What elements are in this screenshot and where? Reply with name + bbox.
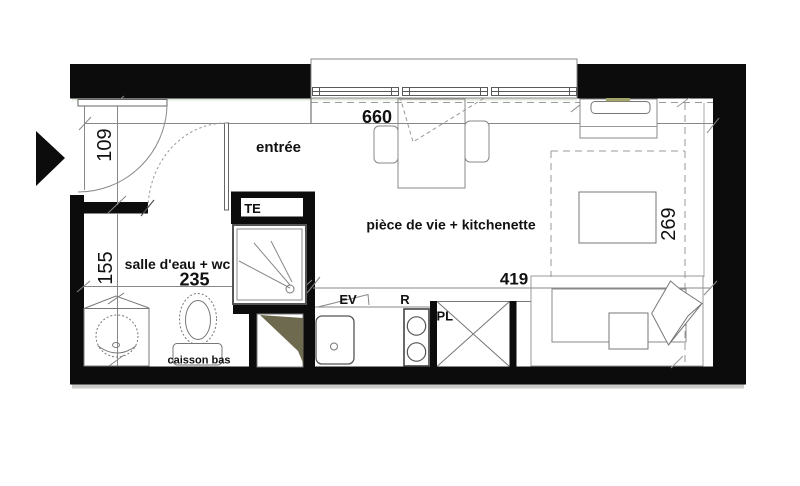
svg-text:419: 419 [500, 270, 528, 289]
svg-text:entrée: entrée [256, 139, 301, 156]
svg-text:R: R [400, 292, 410, 307]
svg-text:salle d'eau + wc: salle d'eau + wc [125, 256, 231, 272]
svg-text:EV: EV [339, 292, 357, 307]
svg-text:660: 660 [362, 107, 392, 127]
svg-text:pièce de vie + kitchenette: pièce de vie + kitchenette [366, 217, 535, 233]
svg-text:TE: TE [244, 201, 261, 216]
svg-text:235: 235 [179, 270, 209, 290]
svg-text:269: 269 [658, 207, 680, 240]
svg-text:caisson bas: caisson bas [168, 355, 231, 367]
svg-text:109: 109 [94, 128, 116, 161]
svg-text:155: 155 [95, 251, 117, 284]
svg-text:PL: PL [437, 309, 454, 324]
